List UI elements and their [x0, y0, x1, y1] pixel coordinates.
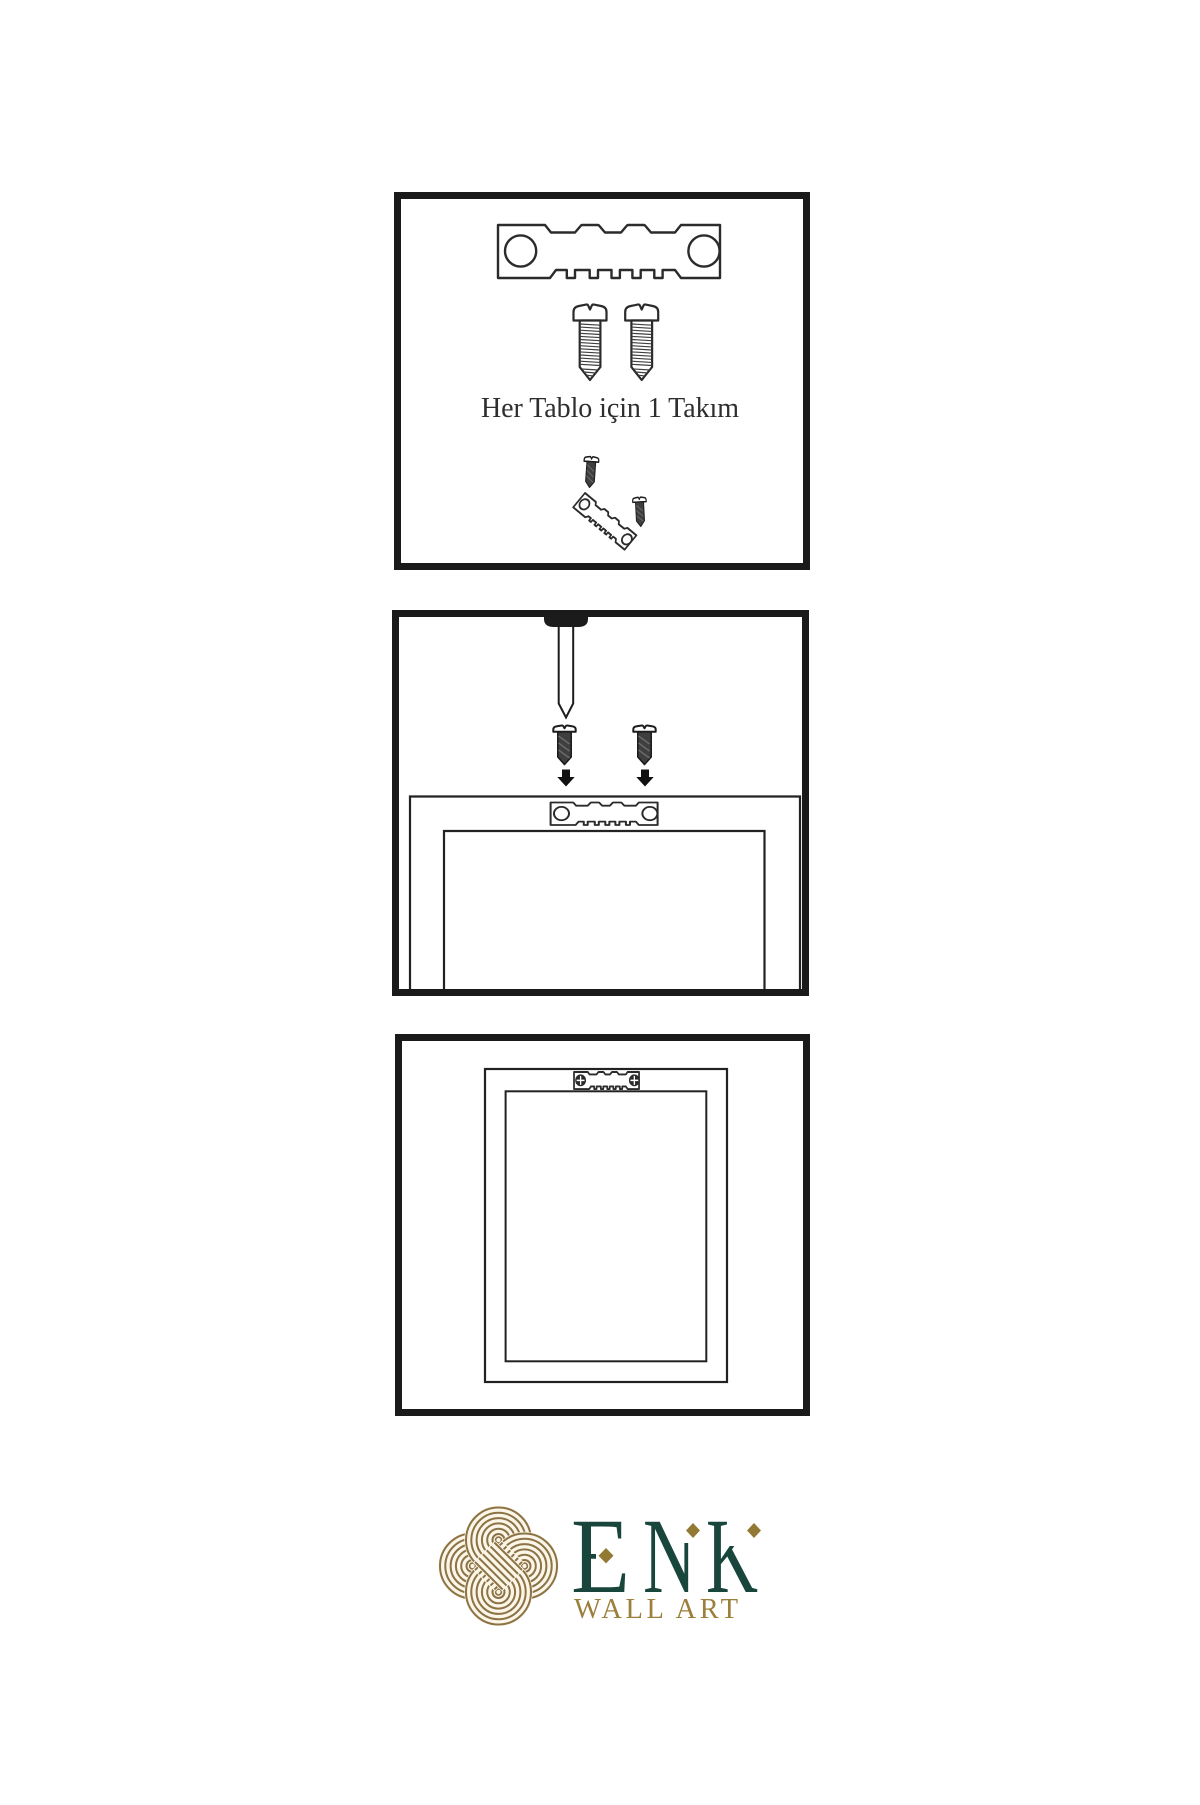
- svg-text:Her Tablo için 1 Takım: Her Tablo için 1 Takım: [481, 393, 739, 424]
